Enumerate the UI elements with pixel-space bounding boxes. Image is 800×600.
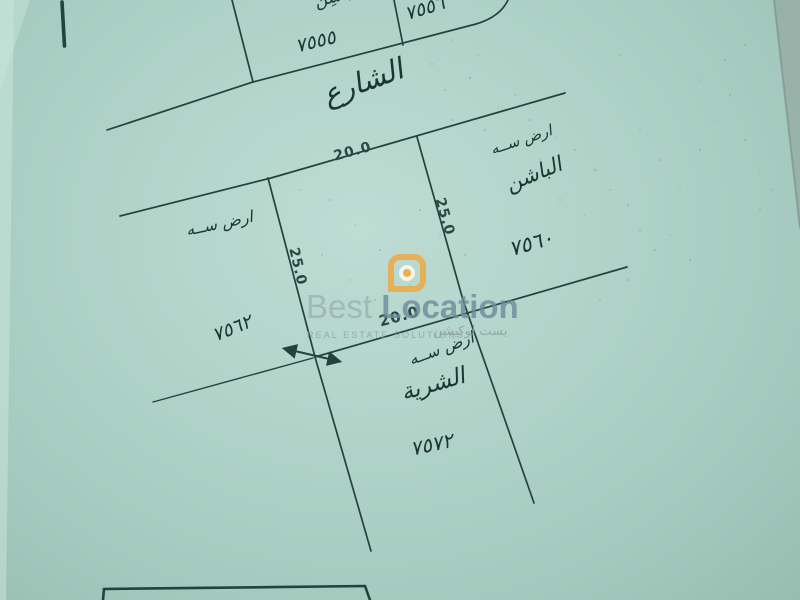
survey-plan-photo: الباشِن ٧٥٥٥ ٧٥٥٦ الشارع 20.0 25.0 25.0 …: [0, 0, 800, 600]
location-pin-icon: [388, 254, 426, 292]
location-pin-dot: [403, 269, 411, 277]
corner-tick-mark: [62, 2, 65, 46]
watermark-brand-second: Location: [381, 288, 519, 325]
plot-7555-7556-divider: [394, 0, 403, 45]
watermark-brand-first: Best: [306, 288, 372, 325]
watermark-arabic-name: بست لوكيشن: [433, 324, 507, 339]
location-pin-ring: [399, 265, 415, 281]
watermark-brand-text: Best Location: [306, 288, 519, 326]
paper-top-left-highlight: [0, 0, 30, 90]
title-block-frame: [103, 586, 370, 600]
corner-cross-arrow: [284, 349, 340, 362]
paper-left-edge-highlight: [0, 0, 14, 600]
corner-tie-line: [153, 358, 313, 402]
street-north-edge: [107, 0, 508, 130]
plot-7555-west-boundary: [232, 0, 253, 82]
centre-plot-west-boundary: [268, 178, 371, 551]
